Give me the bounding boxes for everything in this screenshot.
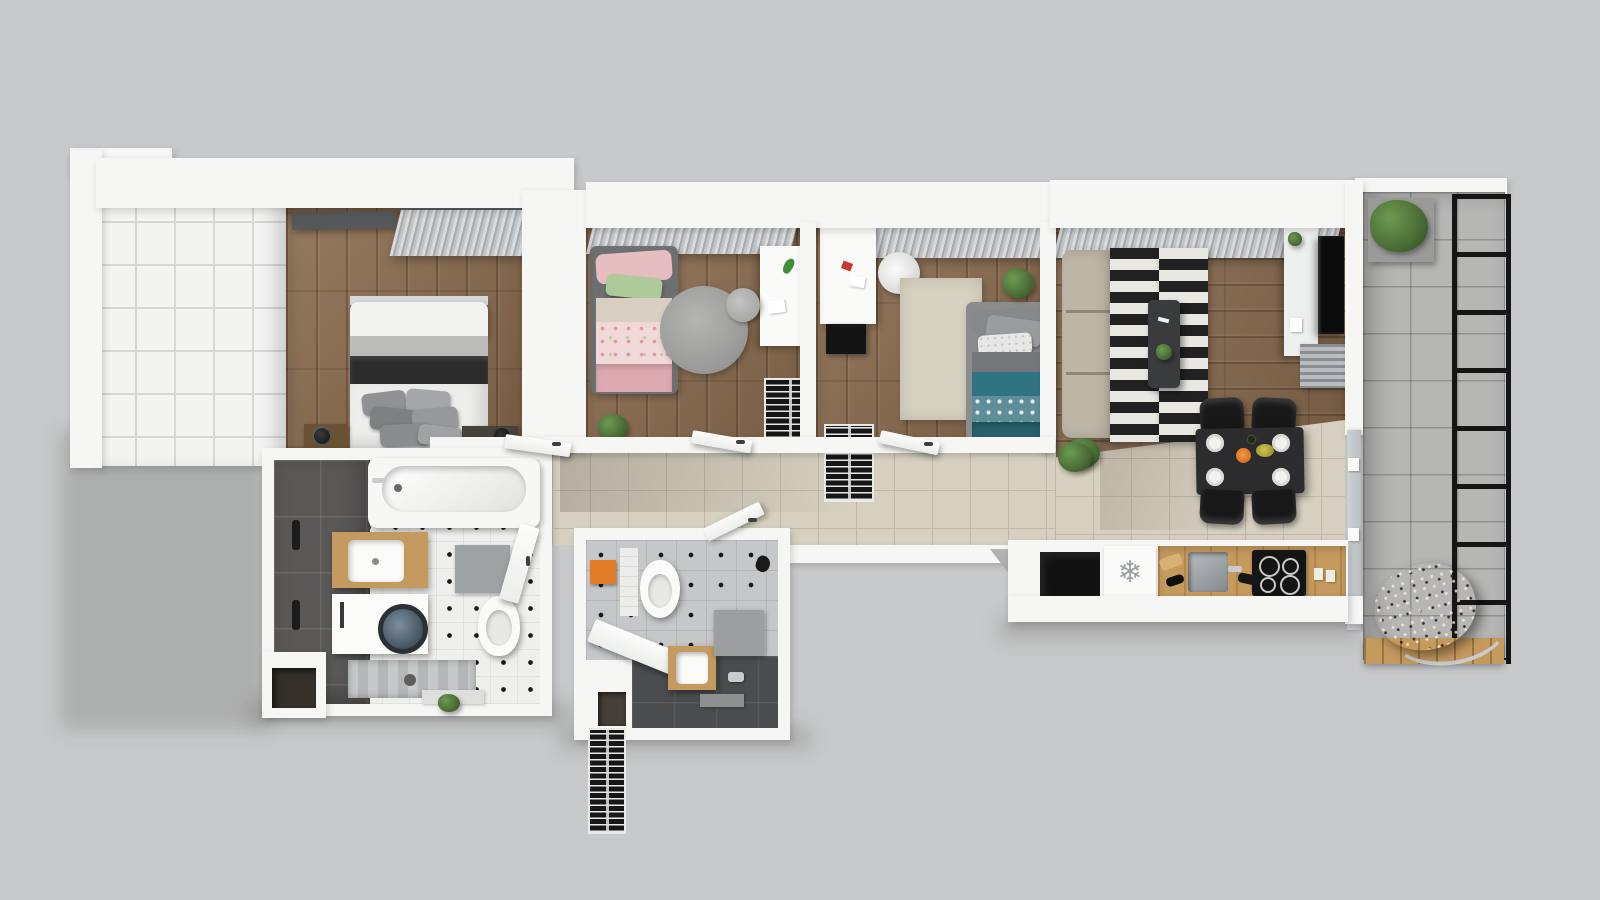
bed3-black-table [826, 324, 866, 354]
kids-desk-chair [726, 288, 760, 322]
shower-bench [714, 610, 764, 656]
fridge-snowflake-glyph: ❄ [1117, 555, 1142, 590]
glass-wall-handle [1348, 458, 1359, 471]
bathroom1-sink-drain [372, 558, 379, 565]
towel-bar [292, 520, 300, 550]
tv-sideboard [1284, 226, 1318, 356]
shower-drain [404, 674, 416, 686]
bed3-desk-paper [849, 275, 866, 288]
glass-wall-handle [1348, 528, 1359, 541]
bathtub-faucet [372, 478, 386, 483]
kids-desk-papers [767, 299, 786, 314]
bathroom2-niche [598, 692, 626, 726]
dining-plate [1206, 468, 1224, 486]
washing-machine-panel [340, 602, 344, 628]
master-bed-blanket-fold [350, 336, 488, 358]
wall-tv [1318, 236, 1344, 334]
dining-dish-salad [1256, 444, 1274, 457]
bathroom2-shelf [588, 728, 626, 834]
hall-plant [1058, 442, 1092, 472]
kitchen-sink [1188, 552, 1228, 592]
bed3-duvet-teal [972, 372, 1048, 398]
radiator [1300, 344, 1346, 388]
fridge-snowflake-icon: ❄ [1104, 548, 1156, 598]
toilet-2-seat [648, 574, 672, 608]
canister [1314, 568, 1323, 580]
shower-faucet [728, 672, 744, 682]
master-bed-throw [350, 356, 488, 386]
bed3-plant [1002, 268, 1034, 298]
hob-ring [1259, 556, 1280, 577]
washing-machine-door [378, 604, 428, 654]
sofa-cushion-seam [1066, 310, 1114, 313]
kids-door-handle [736, 440, 745, 444]
wall-nook-divider [800, 222, 816, 438]
bathroom1-door-handle [526, 556, 530, 566]
bed3-door-handle [924, 442, 933, 446]
railing-post-outer [1506, 194, 1511, 664]
detergent-box [590, 560, 616, 584]
bathroom2-white-tile-strip [620, 548, 638, 616]
bathroom2-sink [676, 652, 708, 684]
bathtub-basin [382, 466, 526, 512]
master-bed-sheet [350, 302, 488, 338]
dining-bottle [1248, 436, 1255, 443]
induction-hob [1252, 550, 1306, 596]
balcony-planter-plant [1370, 200, 1428, 252]
hob-ring [1282, 558, 1299, 575]
dining-plate [1206, 434, 1224, 452]
dining-dish-orange [1236, 448, 1251, 463]
ground-shadow [60, 430, 270, 730]
bed3-wardrobe-clothes [824, 424, 874, 502]
floor-plan-scene: ❄ [0, 0, 1600, 900]
master-grid-wardrobe [96, 178, 286, 466]
master-pelmet [292, 211, 396, 230]
sideboard-plant [1288, 232, 1302, 246]
bed3-duvet-pattern [972, 396, 1048, 424]
towel-bar [292, 600, 300, 630]
sofa-cushion-seam [1066, 372, 1114, 375]
bathroom2-door-handle [748, 518, 757, 522]
wall-north-master [96, 158, 574, 208]
exterior-step-notch [272, 668, 316, 708]
wall-kitchen-south [1008, 596, 1348, 622]
wall-north-living [1050, 180, 1375, 228]
sideboard-item [1290, 318, 1302, 332]
kitchen-niche [1040, 552, 1100, 596]
canister [1326, 570, 1335, 582]
hob-ring [1280, 575, 1300, 595]
coffee-table-plant [1156, 344, 1172, 360]
bed3-desk [820, 228, 876, 324]
master-door-handle [552, 442, 561, 446]
kids-duvet-fold [596, 364, 672, 392]
bathtub-drain [394, 484, 402, 492]
bathroom1-plant [438, 694, 460, 712]
hob-ring [1260, 577, 1276, 593]
dining-chair [1251, 489, 1297, 525]
wall-master-kids [522, 190, 586, 452]
wall-north-mid [586, 182, 1054, 228]
kitchen-faucet [1228, 566, 1242, 572]
toilet-1-seat [486, 610, 512, 646]
dining-plate [1272, 468, 1290, 486]
dining-chair [1199, 489, 1245, 525]
wall-bed3-living [1040, 222, 1056, 452]
master-lamp [312, 426, 332, 446]
bed3-blanket-fold [972, 352, 1048, 374]
wall-east-living [1345, 180, 1363, 435]
dining-plate [1272, 434, 1290, 452]
bath-mat-2 [700, 694, 744, 707]
